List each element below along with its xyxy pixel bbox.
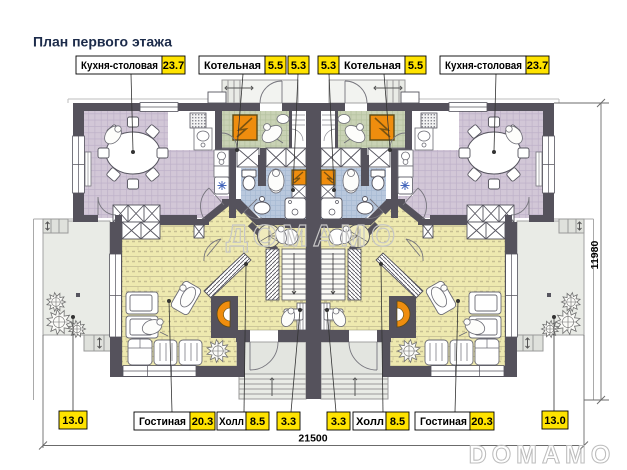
svg-text:21500: 21500 [298, 433, 327, 445]
svg-text:Гостиная: Гостиная [420, 416, 467, 428]
svg-text:5.5: 5.5 [268, 60, 283, 72]
svg-text:ДОМАМО: ДОМАМО [226, 218, 400, 253]
svg-text:Гостиная: Гостиная [139, 416, 186, 428]
svg-text:13.0: 13.0 [62, 415, 83, 427]
svg-text:23.7: 23.7 [527, 60, 548, 72]
svg-text:3.3: 3.3 [281, 416, 296, 428]
svg-text:5.5: 5.5 [408, 60, 423, 72]
svg-text:13.0: 13.0 [544, 415, 565, 427]
svg-text:Холл: Холл [356, 416, 384, 428]
svg-text:20.3: 20.3 [471, 416, 492, 428]
svg-text:Холл: Холл [219, 416, 244, 428]
svg-text:Котельная: Котельная [344, 60, 401, 72]
svg-text:3.3: 3.3 [331, 416, 346, 428]
svg-text:8.5: 8.5 [250, 416, 265, 428]
svg-text:11980: 11980 [589, 241, 601, 270]
svg-text:Котельная: Котельная [204, 60, 261, 72]
svg-text:Кухня-столовая: Кухня-столовая [81, 60, 158, 72]
svg-text:5.3: 5.3 [321, 60, 336, 72]
svg-text:5.3: 5.3 [291, 60, 306, 72]
svg-text:Кухня-столовая: Кухня-столовая [445, 60, 522, 72]
svg-text:23.7: 23.7 [163, 60, 184, 72]
svg-text:20.3: 20.3 [192, 416, 213, 428]
svg-text:План первого этажа: План первого этажа [33, 34, 172, 50]
svg-text:DOMAMO: DOMAMO [469, 441, 616, 469]
svg-text:8.5: 8.5 [390, 416, 405, 428]
